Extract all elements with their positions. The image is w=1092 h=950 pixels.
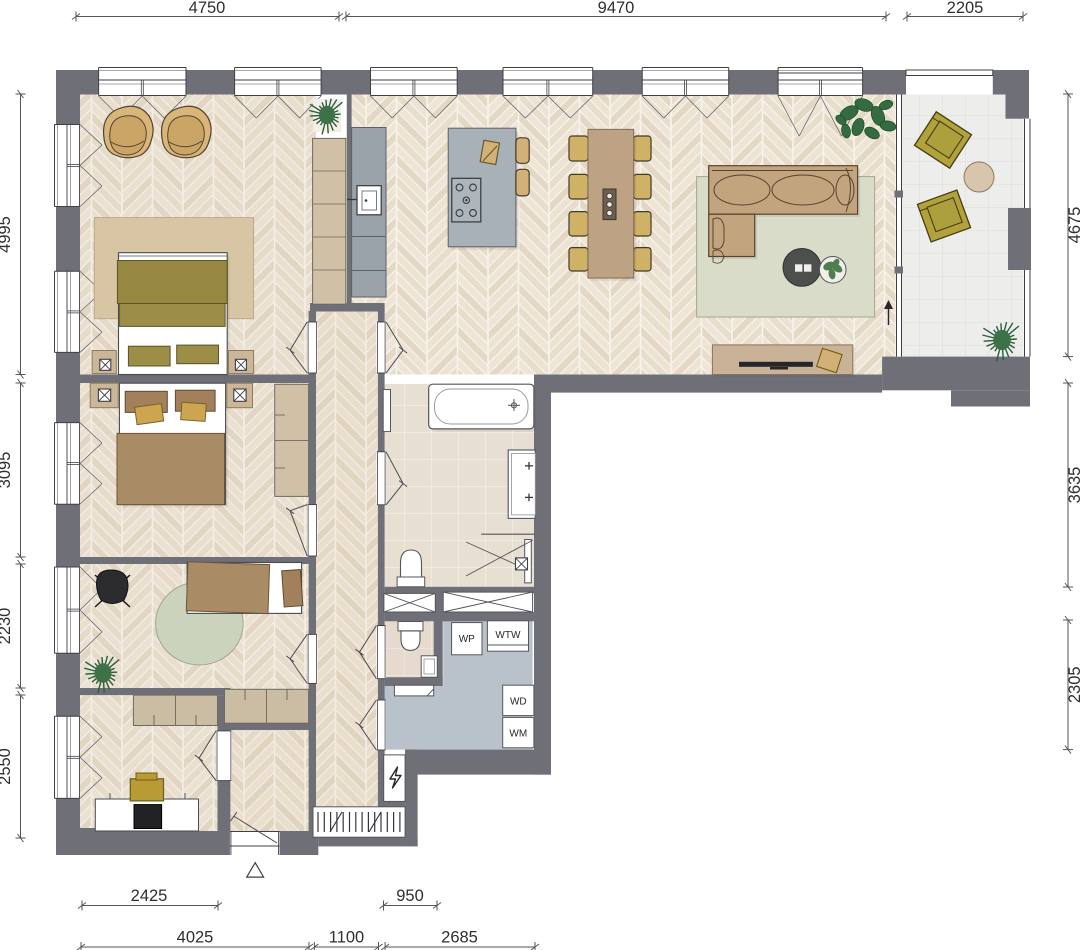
- svg-text:WM: WM: [509, 729, 527, 740]
- svg-text:1100: 1100: [329, 929, 364, 947]
- svg-text:WTW: WTW: [495, 630, 521, 641]
- svg-text:WP: WP: [459, 634, 475, 645]
- svg-text:2425: 2425: [131, 887, 168, 905]
- svg-text:3635: 3635: [1066, 467, 1084, 504]
- svg-text:9470: 9470: [598, 0, 635, 17]
- svg-text:4025: 4025: [177, 929, 214, 947]
- svg-text:WD: WD: [510, 697, 527, 708]
- svg-text:2550: 2550: [0, 748, 14, 785]
- svg-text:2685: 2685: [441, 929, 478, 947]
- svg-text:4995: 4995: [0, 216, 14, 253]
- svg-text:4750: 4750: [189, 0, 226, 17]
- svg-text:3095: 3095: [0, 452, 14, 489]
- svg-text:2205: 2205: [947, 0, 984, 17]
- svg-text:950: 950: [396, 887, 424, 905]
- svg-text:4675: 4675: [1066, 207, 1084, 244]
- svg-text:2230: 2230: [0, 608, 14, 645]
- svg-text:2305: 2305: [1066, 666, 1084, 703]
